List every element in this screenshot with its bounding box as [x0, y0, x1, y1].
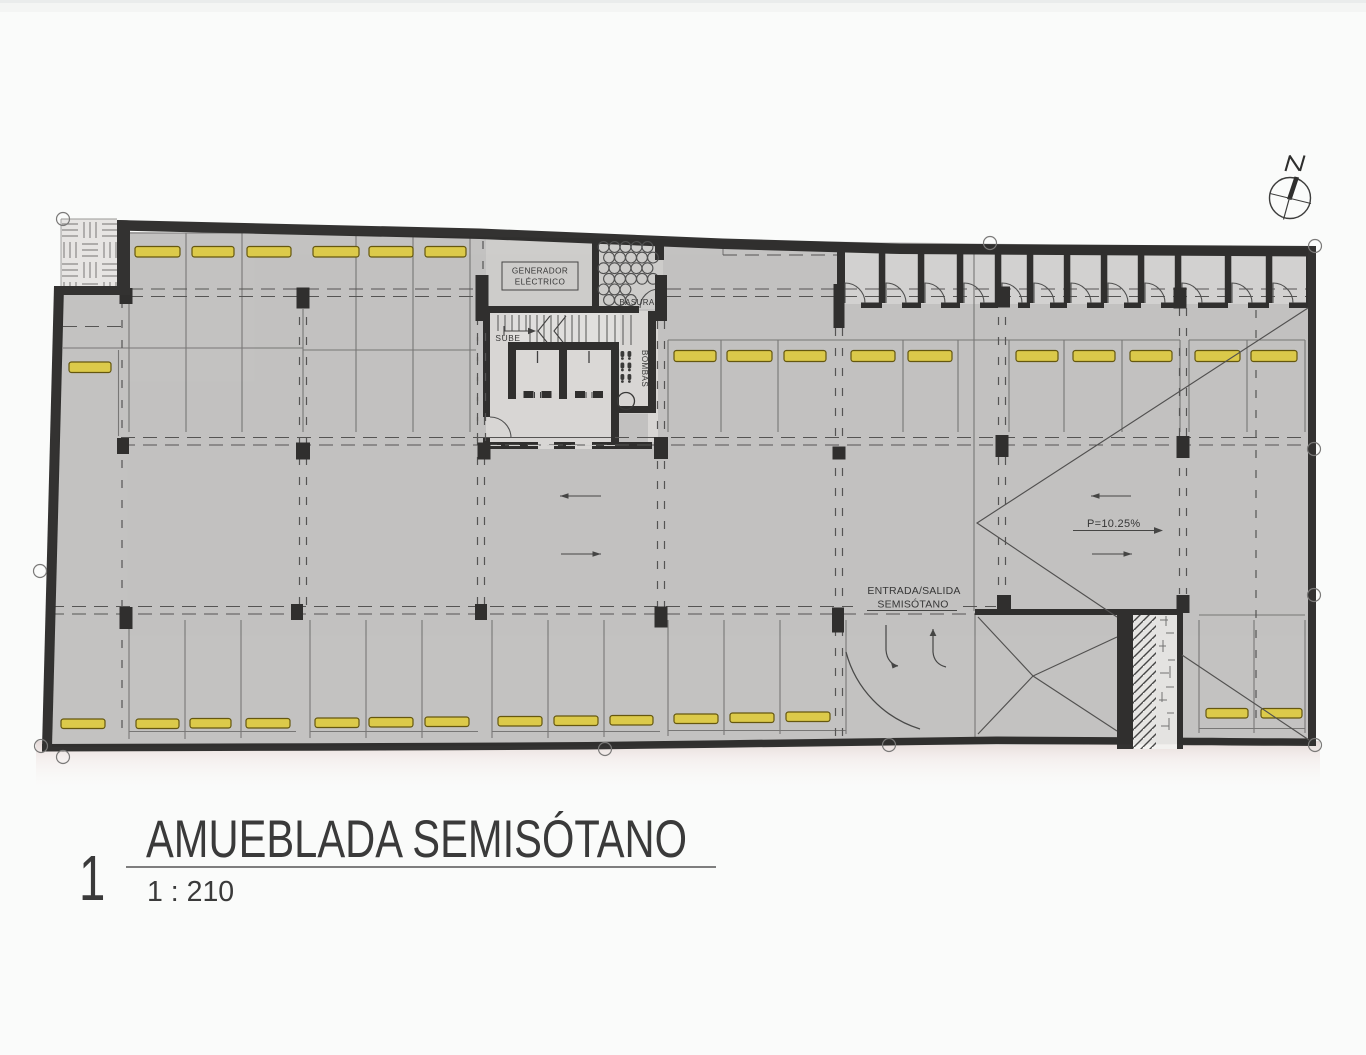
svg-text:AMUEBLADA SEMISÓTANO: AMUEBLADA SEMISÓTANO — [146, 810, 687, 869]
svg-text:1 : 210: 1 : 210 — [147, 876, 234, 908]
svg-text:1: 1 — [79, 842, 105, 914]
